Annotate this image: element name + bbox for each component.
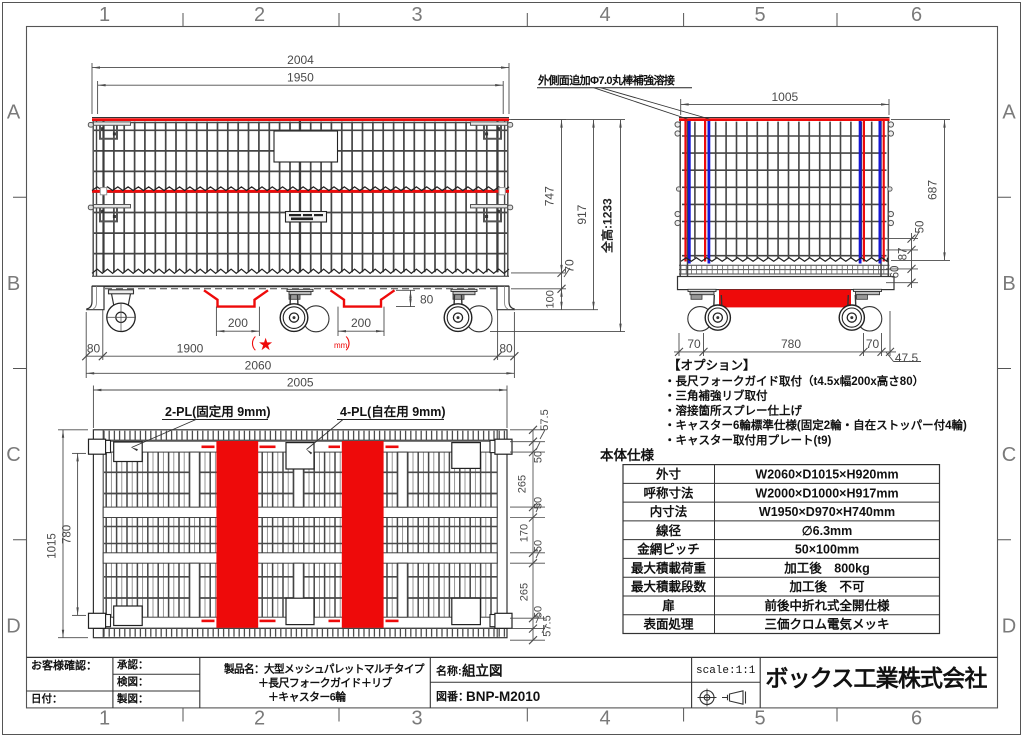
svg-text:87: 87 xyxy=(898,248,910,261)
svg-text:47.5: 47.5 xyxy=(895,351,919,365)
svg-text:（: （ xyxy=(241,336,256,353)
svg-text:6: 6 xyxy=(911,4,922,26)
svg-text:200: 200 xyxy=(228,316,248,330)
svg-text:170: 170 xyxy=(519,524,531,542)
svg-text:50: 50 xyxy=(533,540,545,552)
svg-text:C: C xyxy=(6,444,20,466)
svg-text:D: D xyxy=(1002,615,1016,637)
svg-text:製品名：大型メッシュパレットマルチタイプ: 製品名：大型メッシュパレットマルチタイプ xyxy=(223,663,425,676)
svg-text:W2060×D1015×H920mm: W2060×D1015×H920mm xyxy=(755,467,898,481)
svg-text:2: 2 xyxy=(254,708,265,730)
svg-text:50×100mm: 50×100mm xyxy=(795,543,859,557)
svg-text:日付：: 日付： xyxy=(31,692,63,705)
svg-text:80: 80 xyxy=(87,341,101,355)
svg-text:265: 265 xyxy=(519,583,531,601)
svg-text:外側面追加Φ7.0丸棒補強溶接: 外側面追加Φ7.0丸棒補強溶接 xyxy=(537,73,675,87)
svg-text:・長尺フォークガイド取付（t4.5x幅200x高さ80）: ・長尺フォークガイド取付（t4.5x幅200x高さ80） xyxy=(664,374,924,388)
svg-text:【オプション】: 【オプション】 xyxy=(668,358,756,373)
svg-text:50: 50 xyxy=(533,451,545,463)
svg-text:57.5: 57.5 xyxy=(539,409,551,430)
svg-text:W2000×D1000×H917mm: W2000×D1000×H917mm xyxy=(755,486,898,500)
svg-text:B: B xyxy=(7,273,20,295)
svg-text:検図：: 検図： xyxy=(117,675,149,688)
svg-text:4: 4 xyxy=(599,708,610,730)
svg-text:5: 5 xyxy=(754,4,765,26)
svg-text:4-PL(自在用 9mm): 4-PL(自在用 9mm) xyxy=(340,404,446,419)
svg-text:4: 4 xyxy=(599,4,610,26)
svg-text:線径: 線径 xyxy=(656,523,682,538)
svg-text:承認：: 承認： xyxy=(117,658,149,671)
svg-text:外寸: 外寸 xyxy=(655,466,682,481)
svg-text:1: 1 xyxy=(99,4,110,26)
svg-text:D: D xyxy=(6,615,20,637)
svg-text:C: C xyxy=(1002,444,1016,466)
svg-text:＋キャスター6輪: ＋キャスター6輪 xyxy=(268,690,346,704)
svg-text:1005: 1005 xyxy=(771,90,798,104)
svg-text:50: 50 xyxy=(915,221,927,234)
svg-text:scale:1:1: scale:1:1 xyxy=(696,665,756,677)
svg-text:三価クロム電気メッキ: 三価クロム電気メッキ xyxy=(764,617,889,632)
svg-text:57.5: 57.5 xyxy=(542,615,554,636)
svg-text:＋長尺フォークガイド＋リブ: ＋長尺フォークガイド＋リブ xyxy=(258,676,393,690)
svg-text:表面処理: 表面処理 xyxy=(642,617,694,632)
svg-text:・溶接箇所スプレー仕上げ: ・溶接箇所スプレー仕上げ xyxy=(664,403,802,417)
svg-text:2: 2 xyxy=(254,4,265,26)
svg-text:1900: 1900 xyxy=(177,341,204,355)
svg-text:A: A xyxy=(7,102,21,124)
svg-text:2005: 2005 xyxy=(287,376,314,390)
svg-text:100: 100 xyxy=(545,290,557,308)
svg-text:780: 780 xyxy=(781,337,801,351)
svg-text:3: 3 xyxy=(411,4,422,26)
svg-text:最大積載段数: 最大積載段数 xyxy=(631,579,707,594)
svg-text:お客様確認：: お客様確認： xyxy=(31,658,97,672)
svg-text:B: B xyxy=(1002,273,1015,295)
svg-text:1950: 1950 xyxy=(287,71,314,85)
svg-text:70: 70 xyxy=(687,337,701,351)
svg-text:・三角補強リブ取付: ・三角補強リブ取付 xyxy=(664,389,768,403)
svg-text:本体仕様: 本体仕様 xyxy=(600,447,654,463)
svg-text:917: 917 xyxy=(575,204,589,224)
svg-text:70: 70 xyxy=(563,259,577,273)
svg-text:5: 5 xyxy=(754,708,765,730)
svg-text:6: 6 xyxy=(911,708,922,730)
svg-text:1015: 1015 xyxy=(47,533,59,559)
svg-text:扉: 扉 xyxy=(662,598,675,613)
svg-text:747: 747 xyxy=(543,186,557,206)
svg-text:名称:: 名称: xyxy=(436,664,462,678)
svg-text:最大積載荷重: 最大積載荷重 xyxy=(631,560,707,575)
svg-text:組立図: 組立図 xyxy=(462,663,503,679)
svg-text:687: 687 xyxy=(926,180,940,200)
svg-text:呼称寸法: 呼称寸法 xyxy=(643,485,694,500)
svg-text:★: ★ xyxy=(258,335,273,354)
svg-text:製図：: 製図： xyxy=(116,692,149,705)
svg-text:前後中折れ式全開仕様: 前後中折れ式全開仕様 xyxy=(764,598,890,613)
svg-text:全高:1233: 全高:1233 xyxy=(600,198,615,254)
svg-text:1: 1 xyxy=(99,708,110,730)
svg-text:ボックス工業株式会社: ボックス工業株式会社 xyxy=(765,665,987,691)
svg-text:図番：: 図番： xyxy=(436,689,469,703)
svg-text:80: 80 xyxy=(499,341,513,355)
svg-text:内寸法: 内寸法 xyxy=(650,504,688,519)
svg-text:2-PL(固定用 9mm): 2-PL(固定用 9mm) xyxy=(165,404,271,419)
svg-text:加工後 不可: 加工後 不可 xyxy=(788,579,865,594)
svg-text:80: 80 xyxy=(420,293,434,307)
svg-text:・キャスター6輪標準仕様(固定2輪・自在ストッパー付4輪): ・キャスター6輪標準仕様(固定2輪・自在ストッパー付4輪) xyxy=(664,418,967,432)
svg-text:70: 70 xyxy=(866,337,880,351)
svg-text:A: A xyxy=(1002,102,1016,124)
svg-text:60: 60 xyxy=(890,266,902,279)
svg-text:780: 780 xyxy=(62,525,74,544)
svg-text:2004: 2004 xyxy=(287,53,314,67)
svg-text:W1950×D970×H740mm: W1950×D970×H740mm xyxy=(759,505,895,519)
svg-text:）: ） xyxy=(345,336,360,353)
svg-text:加工後 800kg: 加工後 800kg xyxy=(783,560,869,575)
svg-text:200: 200 xyxy=(351,316,371,330)
svg-text:∅6.3mm: ∅6.3mm xyxy=(802,524,853,538)
svg-text:2060: 2060 xyxy=(245,359,272,373)
svg-text:BNP-M2010: BNP-M2010 xyxy=(466,689,540,704)
svg-text:265: 265 xyxy=(517,475,529,493)
svg-text:3: 3 xyxy=(411,708,422,730)
svg-text:・キャスター取付用プレート(t9): ・キャスター取付用プレート(t9) xyxy=(664,433,832,447)
svg-text:金網ピッチ: 金網ピッチ xyxy=(636,542,700,557)
